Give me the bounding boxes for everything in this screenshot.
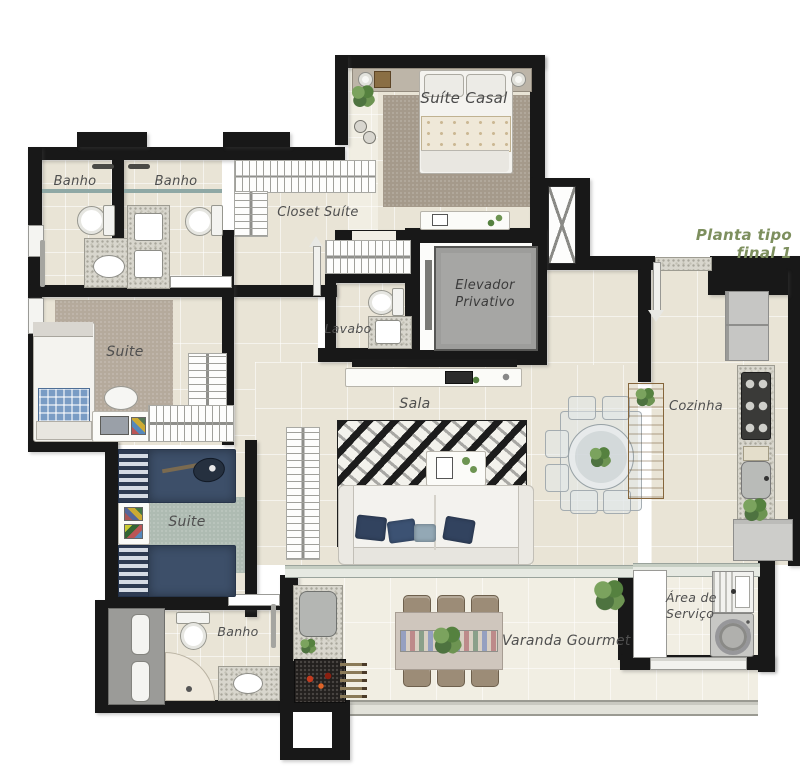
bed-foot [36,421,92,440]
faucet [764,476,769,481]
elevador-line2: Privativo [455,295,515,310]
room-label-closet-suite: Closet Suíte [256,205,380,220]
shower-arm [128,164,150,169]
pillow-navy [442,516,476,545]
room-label-banho-lower: Banho [200,624,276,639]
toilet [368,290,395,315]
pillow-light [414,524,436,542]
room-label-lavabo: Lavabo [316,321,380,336]
sofa-armrest [338,485,354,565]
window [650,657,747,670]
skewer [340,671,367,674]
sofa-seam [434,495,436,550]
plant-decor [462,457,470,465]
tv [352,359,517,367]
wall [105,440,118,610]
room-label-banho-1: Banho [40,174,110,189]
wall [223,132,290,147]
shower-glass [42,189,112,193]
fridge [725,291,769,325]
shower-drain [186,686,192,692]
plant-decor [470,466,477,473]
shelf-unit [286,427,320,560]
wall [325,280,336,355]
bed-navy [148,449,236,503]
shower-glass [124,189,222,193]
bed-foot [421,150,509,172]
room-label-elevador: Elevador Privativo [436,277,534,311]
plant [592,578,626,612]
picture-frame [436,457,453,479]
pillow-navy [387,518,418,544]
dining-chair [545,464,569,492]
wall [345,55,545,68]
toilet [77,206,106,235]
skewer [340,695,367,698]
sink [233,673,263,694]
wall [530,55,545,178]
sofa-armrest [518,485,534,565]
wall [335,55,348,145]
room-label-sala: Sala [375,396,455,412]
wall-inset [293,712,332,748]
duct-shaft [548,186,576,264]
room-label-varanda: Varanda Gourmet [502,633,652,649]
bed-runner [421,116,511,152]
towel-bar [40,240,45,287]
skewer [340,687,367,690]
plaid-blanket [38,388,90,423]
dining-chair [568,396,596,420]
balcony-railing [298,700,758,716]
plant [350,84,376,108]
picture-frame [432,214,448,226]
bed-navy [148,545,236,597]
skewer [340,679,367,682]
area-servico-line1: Área de [666,590,717,605]
lamp [511,72,526,87]
wall [590,256,655,270]
floor-plan: Elevador Privativo Suíte Casal Planta ti… [0,0,800,784]
toilet [185,207,214,236]
sink [134,250,163,278]
toilet-tank [103,205,115,236]
floor-foyer [547,270,638,365]
bed-headboard [33,322,93,337]
books [124,524,143,539]
kitchen-cabinet [733,519,793,561]
bed-headboard-striped [118,545,150,597]
dining-chair [602,396,630,420]
bbq-sink [299,591,337,637]
bed-headboard-striped [118,449,150,503]
plant [741,497,769,522]
desk-chair [104,386,138,410]
entry-arrow [653,262,661,312]
wall [245,440,257,617]
shower-arm [92,164,114,169]
room-label-suite-casal: Suíte Casal [400,89,528,107]
laptop [100,416,129,435]
pillow-navy [355,514,387,541]
room-label-suite-left: Suite [85,344,165,360]
wall [758,555,775,672]
wardrobe-door [131,661,150,702]
plan-title: Planta tipo final 1 [652,226,792,262]
plant-centerpiece [588,446,612,468]
coffee-table [426,451,486,486]
cooktop [741,372,771,440]
wardrobe-rack [188,353,227,407]
knob [363,131,376,144]
elevador-line1: Elevador [455,278,514,293]
dining-chair [570,490,598,514]
closet-rack [325,240,411,274]
plant-centerpiece [431,625,463,655]
dining-chair [545,430,569,458]
cutting-board [743,446,769,461]
fridge [725,325,769,361]
entry-arrow-head [648,310,664,322]
wall [638,270,651,382]
sink [93,255,125,278]
charcoal-grill [294,659,346,703]
wall [95,600,108,710]
wall [28,147,345,160]
sliding-door [170,276,232,288]
tv-console [345,368,522,387]
wall [77,132,147,147]
hall-arrow [313,246,321,296]
room-label-banho-2: Banho [138,174,214,189]
console-decor [445,371,473,384]
plant [634,387,656,407]
floor-varanda-right [610,668,758,700]
plant [299,638,317,654]
wardrobe-door [131,614,150,655]
glass-sliding-door [285,565,640,578]
books [124,507,143,521]
nightstand-decor [374,71,391,88]
sink [134,213,163,241]
room-label-cozinha: Cozinha [654,399,738,414]
toilet-tank [392,288,404,316]
washer-door [715,619,751,655]
book [131,417,146,435]
room-label-suite-lower: Suite [147,514,227,530]
room-label-area-servico: Área de Serviço [666,590,738,622]
toilet-tank [211,205,223,236]
area-servico-line2: Serviço [666,606,714,621]
wardrobe-rack [148,405,234,442]
elevator-rail [425,260,432,330]
skewer [340,663,367,666]
closet-rack [234,160,376,193]
dining-chair [603,490,631,514]
